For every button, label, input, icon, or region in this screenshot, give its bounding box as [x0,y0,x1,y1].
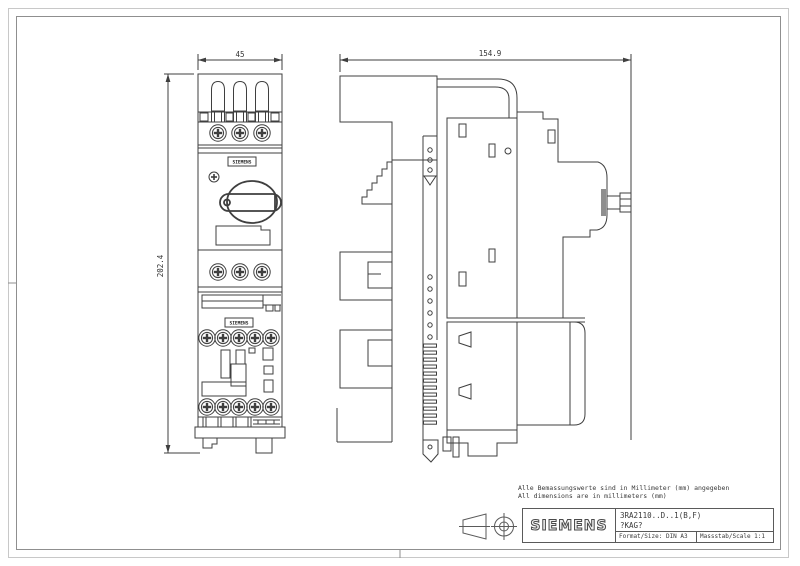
front-view: 45 202.4 [156,50,285,453]
part-number-cell: 3RA2110..D..1(B,F) ?KAG? [616,509,773,532]
front-pins [198,82,282,123]
breaker-brand-plate: SIEMENS [228,157,256,166]
dim-front-height-value: 202.4 [156,254,165,277]
contactor-brand-label: SIEMENS [230,321,249,327]
arrowhead-right [274,58,282,63]
format-cell: Format/Size: DIN A3 [616,532,697,542]
dim-side-depth: 154.9 [340,49,631,440]
terminal-screws-row-4 [199,399,279,415]
front-foot-right [256,438,272,453]
notes: Alle Bemassungswerte sind in Millimeter … [518,485,729,500]
terminal-screws-row-3 [199,330,279,346]
contactor-mechanism [202,348,273,396]
rotary-handle [220,181,281,223]
rail-adapter-housing [447,118,585,456]
arrowhead-left [198,58,206,63]
contactor-side-profile [517,322,585,425]
drawing-sheet: 45 202.4 [0,0,800,566]
reference-number: ?KAG? [620,521,773,531]
title-block: SIEMENS 3RA2110..D..1(B,F) ?KAG? Format/… [522,508,774,543]
arrowhead-left [340,58,348,63]
front-screw-head [209,172,219,182]
dim-front-height: 202.4 [156,74,200,453]
arrowhead-bottom [166,445,171,453]
rotary-shaft [607,193,631,212]
breaker-brand-label: SIEMENS [233,160,252,166]
contactor-top-details [202,295,281,311]
front-foot-left [203,438,217,448]
part-number: 3RA2110..D..1(B,F) [620,511,773,521]
din-rail-plate [423,136,459,462]
page-frames [8,9,789,559]
title-block-right: 3RA2110..D..1(B,F) ?KAG? Format/Size: DI… [616,509,773,542]
technical-drawing: 45 202.4 [0,0,800,566]
front-base [195,427,285,438]
contactor-brand-plate: SIEMENS [225,318,253,327]
siemens-logo: SIEMENS [523,509,616,542]
terminal-screws-row-2 [210,264,270,280]
note-line-en: All dimensions are in millimeters (mm) [518,493,729,501]
dim-front-width: 45 [198,50,282,70]
nameplate [216,226,270,245]
arrowhead-right [623,58,631,63]
din-rail-fins [424,344,437,424]
side-view: 154.9 [337,49,631,462]
arrowhead-top [166,74,171,82]
front-bottom-band [198,417,282,427]
dim-side-depth-value: 154.9 [479,49,502,58]
title-block-bottom-row: Format/Size: DIN A3 Massstab/Scale 1:1 [616,532,773,542]
first-angle-projection-icon [459,513,517,540]
siemens-logo-text: SIEMENS [530,518,607,534]
scale-cell: Massstab/Scale 1:1 [697,532,773,542]
dim-front-width-value: 45 [235,50,244,59]
busbar-adapter [337,76,437,442]
terminal-screws-row-1 [210,125,270,141]
